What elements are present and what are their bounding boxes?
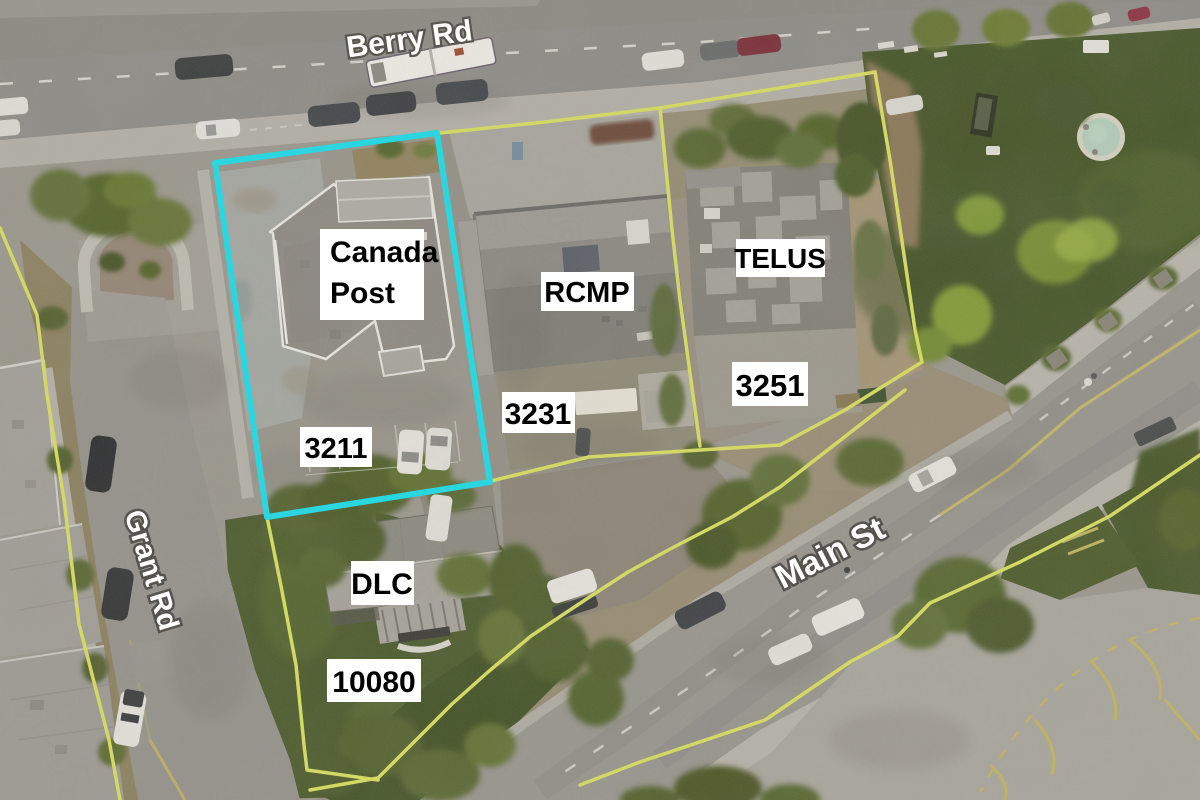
svg-text:3211: 3211 bbox=[305, 433, 368, 465]
svg-text:10080: 10080 bbox=[332, 666, 415, 699]
svg-text:Canada: Canada bbox=[330, 236, 439, 269]
svg-text:3231: 3231 bbox=[505, 398, 572, 431]
svg-text:RCMP: RCMP bbox=[544, 277, 629, 309]
svg-text:DLC: DLC bbox=[351, 568, 413, 601]
svg-text:TELUS: TELUS bbox=[734, 243, 826, 274]
svg-text:Post: Post bbox=[330, 277, 395, 310]
svg-text:3251: 3251 bbox=[736, 368, 805, 403]
